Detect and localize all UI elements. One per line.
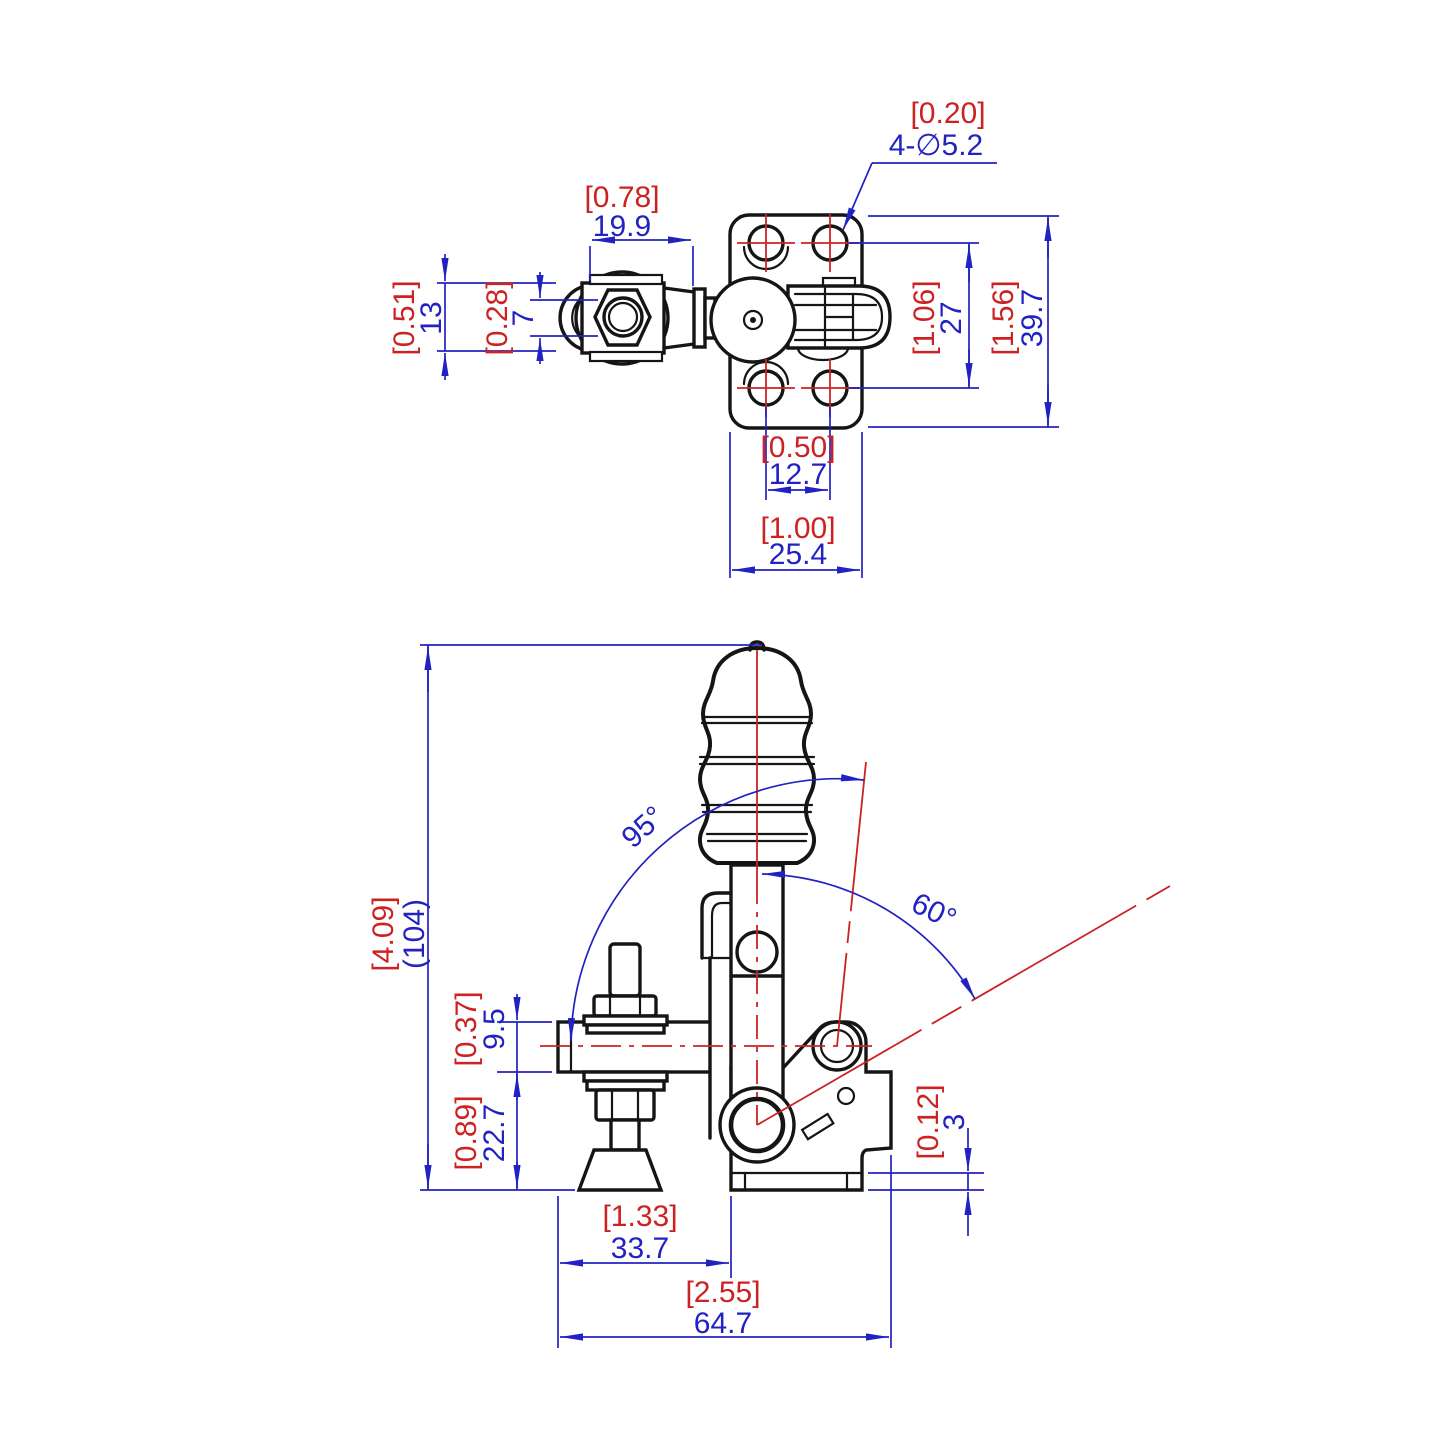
dim-label: 7 <box>507 310 540 327</box>
handle-knob-top <box>711 278 795 362</box>
technical-drawing-canvas: [0.78] 19.9 [0.51] 13 [0.28] 7 [1 <box>0 0 1445 1445</box>
dim-label: 9.5 <box>478 1008 511 1050</box>
dimension-spindle-width: [0.78] 19.9 <box>584 181 693 286</box>
handle-open-position-line <box>837 762 866 1046</box>
dim-label: 22.7 <box>478 1104 511 1162</box>
dim-label: [0.20] <box>910 97 985 130</box>
dim-label: 33.7 <box>611 1232 669 1265</box>
dim-label: [2.55] <box>685 1276 760 1309</box>
dimension-handle-angle: 60° <box>762 874 975 999</box>
clamp-bar-top <box>788 286 890 360</box>
dim-label: [4.09] <box>367 896 400 971</box>
angle-label: 95° <box>615 800 671 855</box>
dim-label: 12.7 <box>769 458 827 491</box>
dim-label: (104) <box>398 899 431 969</box>
dim-label: 25.4 <box>769 538 827 571</box>
dim-label: 13 <box>415 301 448 334</box>
dim-label: 39.7 <box>1016 289 1049 347</box>
dim-label: 64.7 <box>694 1307 752 1340</box>
dim-label: 4-∅5.2 <box>889 129 984 162</box>
dim-label: 3 <box>938 1114 971 1131</box>
dimension-bar-to-base: [0.89] 22.7 <box>450 1072 517 1190</box>
dim-label: 27 <box>935 301 968 334</box>
dimension-bar-thickness: [0.37] 9.5 <box>450 991 552 1100</box>
dim-label: 19.9 <box>593 210 651 243</box>
top-view: [0.78] 19.9 [0.51] 13 [0.28] 7 [1 <box>388 97 1059 578</box>
hole-callout: [0.20] 4-∅5.2 <box>843 97 997 230</box>
front-view: 95° 60° [4.09] (104) [0.37] 9.5 <box>367 642 1170 1348</box>
bar-open-position-line <box>757 886 1170 1125</box>
rubber-foot <box>579 1150 661 1190</box>
spindle-assembly-top <box>560 272 715 364</box>
dim-label: [1.33] <box>602 1200 677 1233</box>
toggle-clamp-drawing: [0.78] 19.9 [0.51] 13 [0.28] 7 [1 <box>0 0 1445 1445</box>
